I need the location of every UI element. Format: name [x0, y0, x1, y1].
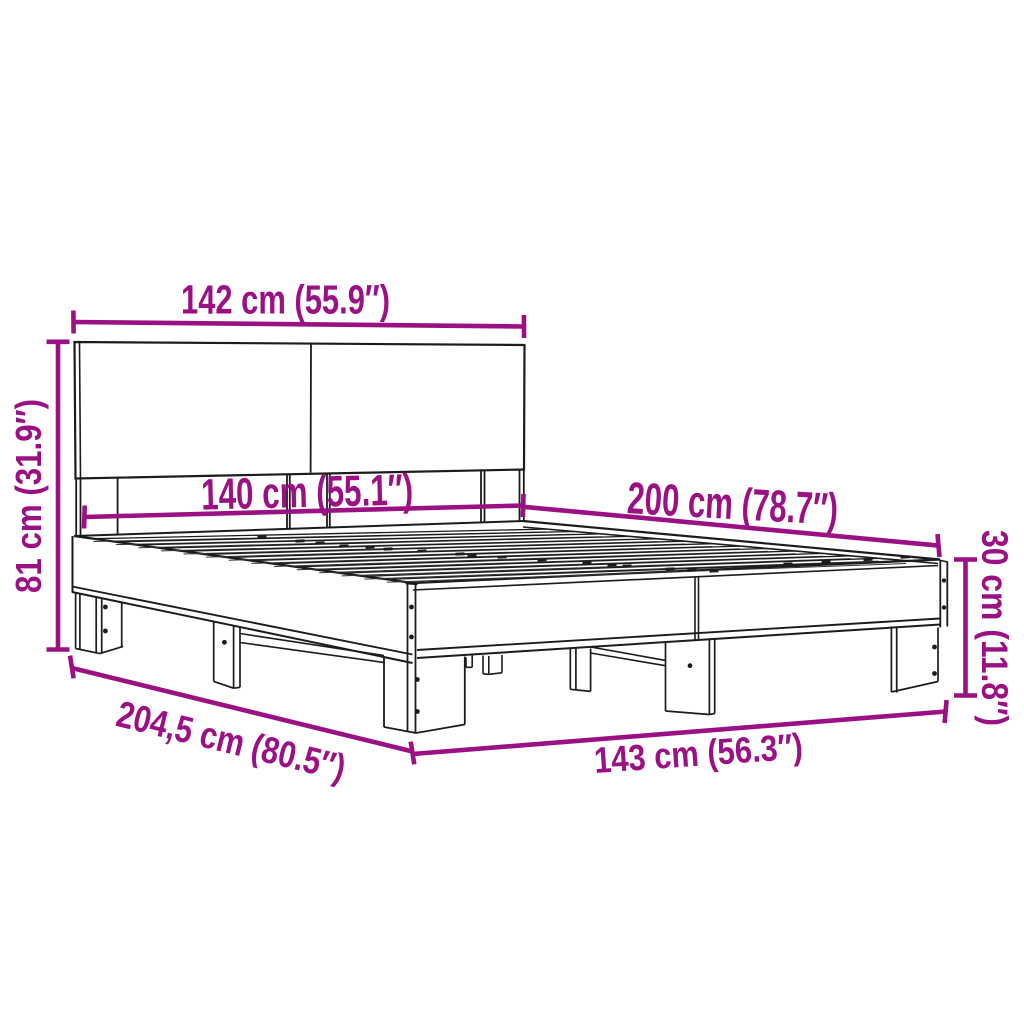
svg-text:81 cm (31.9″): 81 cm (31.9″): [8, 399, 49, 593]
svg-text:142 cm (55.9″): 142 cm (55.9″): [181, 277, 390, 323]
svg-text:30 cm (11.8″): 30 cm (11.8″): [974, 530, 1015, 726]
svg-text:140 cm (55.1″): 140 cm (55.1″): [201, 465, 414, 519]
